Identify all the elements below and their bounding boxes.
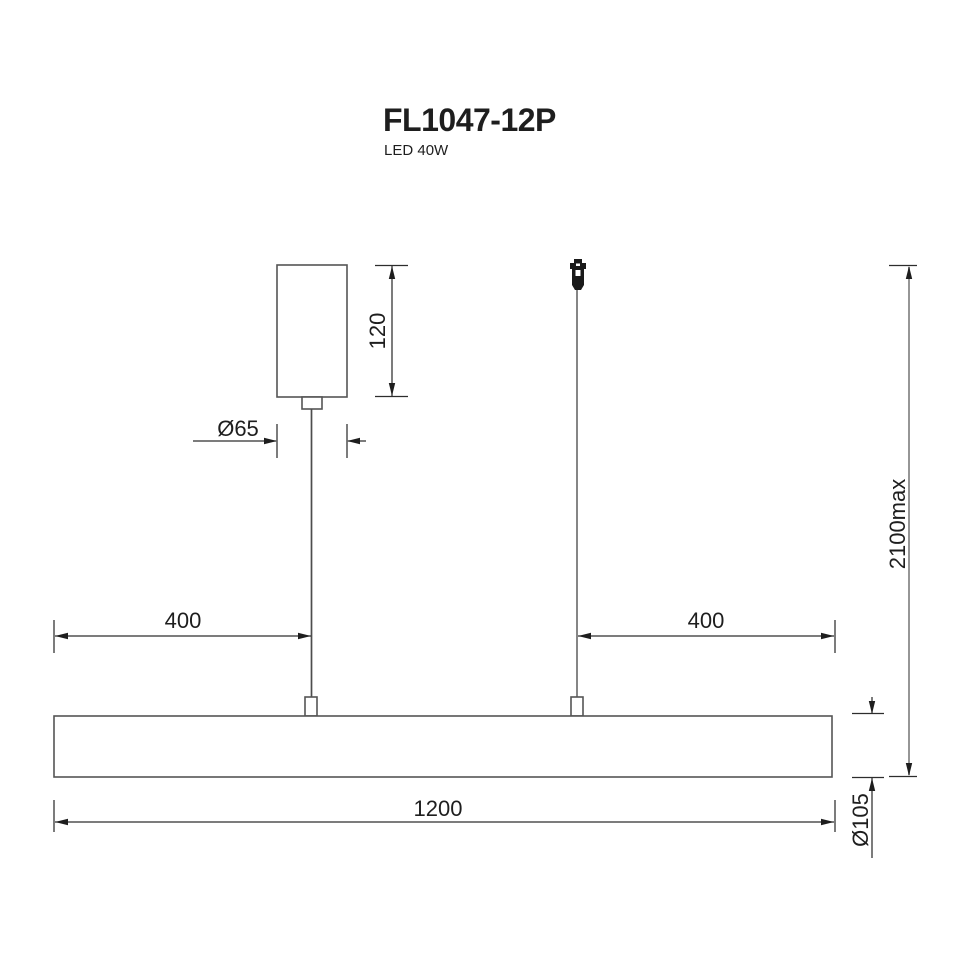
dim-bar-diameter: Ø105 <box>848 697 884 858</box>
dim-left-offset: 400 <box>54 608 311 653</box>
dim-label-left-offset: 400 <box>165 608 202 633</box>
dim-label-bar-length: 1200 <box>414 796 463 821</box>
arrowhead-left <box>55 819 68 825</box>
pendant-lamp-dimension-drawing: FL1047-12P LED 40W 120 <box>0 0 970 970</box>
arrowhead-right <box>298 633 311 639</box>
dim-canopy-height: 120 <box>365 266 408 397</box>
product-spec: LED 40W <box>384 142 449 159</box>
dim-bar-length: 1200 <box>54 796 835 832</box>
title-block: FL1047-12P LED 40W <box>383 102 556 159</box>
canopy-nipple <box>302 397 322 409</box>
arrowhead-right <box>821 819 834 825</box>
arrowhead-right <box>821 633 834 639</box>
arrowhead-right <box>264 438 277 444</box>
arrowhead-down <box>869 701 875 714</box>
arrowhead-down <box>389 383 395 396</box>
dim-label-canopy-diameter: Ø65 <box>217 416 259 441</box>
lamp-bar <box>54 716 832 777</box>
dim-label-right-offset: 400 <box>688 608 725 633</box>
cable-connector-right <box>571 697 583 716</box>
arrowhead-left <box>55 633 68 639</box>
dim-max-height: 2100max <box>885 266 917 777</box>
arrowhead-up <box>869 778 875 791</box>
cable-connector-left <box>305 697 317 716</box>
dim-canopy-diameter: Ø65 <box>193 416 366 458</box>
ceiling-canopy <box>277 265 347 397</box>
dim-label-bar-diameter: Ø105 <box>848 793 873 847</box>
cable-adjuster <box>570 259 586 290</box>
product-code: FL1047-12P <box>383 102 556 138</box>
dim-label-canopy-height: 120 <box>365 313 390 350</box>
dim-label-max-height: 2100max <box>885 479 910 570</box>
arrowhead-down <box>906 763 912 776</box>
arrowhead-left <box>578 633 591 639</box>
dim-right-offset: 400 <box>578 608 835 653</box>
adjuster-cap-notch <box>576 264 580 267</box>
arrowhead-left <box>347 438 360 444</box>
technical-drawing-page: FL1047-12P LED 40W 120 <box>0 0 970 970</box>
arrowhead-up <box>906 266 912 279</box>
adjuster-taper <box>572 285 584 290</box>
arrowhead-up <box>389 266 395 279</box>
adjuster-window <box>576 270 581 276</box>
fixture <box>54 259 832 777</box>
